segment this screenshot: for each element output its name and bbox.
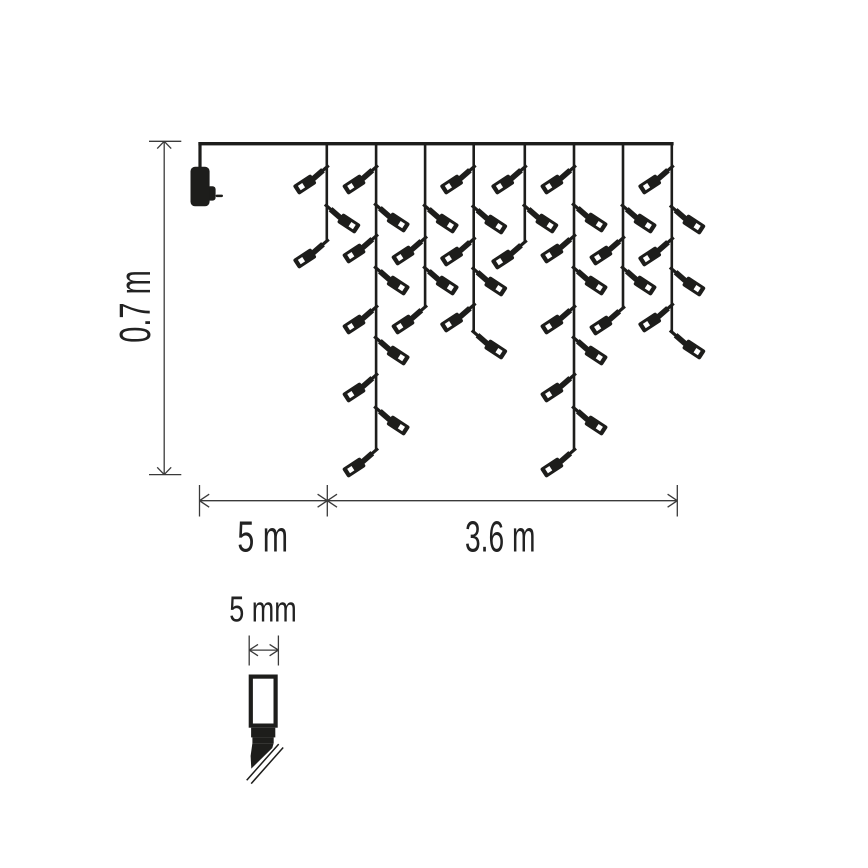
svg-text:5 mm: 5 mm [229,588,296,629]
svg-text:5 m: 5 m [237,513,288,562]
svg-text:0.7 m: 0.7 m [110,270,160,343]
svg-text:3.6 m: 3.6 m [465,512,535,561]
